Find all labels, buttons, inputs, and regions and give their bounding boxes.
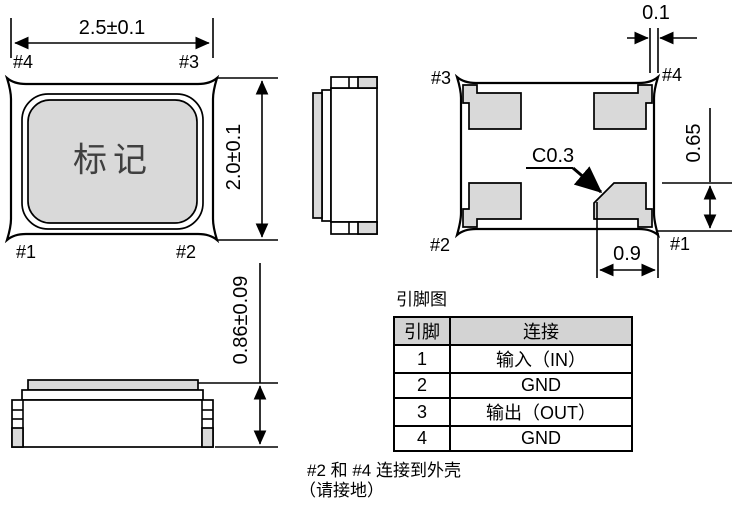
pin-connection-cell: 输出（OUT） [450,398,632,426]
pin-number-cell: 2 [394,373,450,398]
front-body [12,400,213,447]
top-view-pin2-label: #2 [176,243,196,263]
front-lid [28,380,198,390]
pin-number-cell: 4 [394,426,450,451]
chamfer-label: C0.3 [527,145,579,167]
side-body [331,88,377,222]
pin-table-header-row: 引脚 连接 [394,317,632,345]
grounding-note-line1: #2 和 #4 连接到外壳 [307,462,461,481]
pin-connection-cell: GND [450,426,632,451]
pin-table-row: 1 输入（IN） [394,345,632,373]
top-view-height-dim-label: 2.0±0.1 [223,124,245,191]
grounding-note-line2: （请接地） [299,482,384,501]
side-lid-layer [322,90,331,221]
bottom-view-pin3-label: #3 [431,69,451,89]
bottom-view-pin4-label: #4 [662,66,682,86]
bottom-view-pin2-label: #2 [430,236,450,256]
front-view-height-dim-label: 0.86±0.09 [230,276,252,365]
pin-table-row: 2 GND [394,373,632,398]
corner-offset-dim-label: 0.1 [634,2,678,24]
top-view-width-dim-label: 2.5±0.1 [52,17,172,39]
pin-number-cell: 1 [394,345,450,373]
pin-connection-cell: GND [450,373,632,398]
pin-table-row: 4 GND [394,426,632,451]
pin-connection-cell: 输入（IN） [450,345,632,373]
marking-text: 标记 [73,142,153,179]
side-view-drawing [313,77,377,234]
top-view-pin1-label: #1 [16,243,36,263]
connection-column-header: 连接 [450,317,632,345]
pin-number-cell: 3 [394,398,450,426]
pad-width-dim-label: 0.9 [603,243,651,265]
side-lid-gray-layer [313,93,322,218]
front-seal-layer [22,390,203,400]
top-view-pin3-label: #3 [179,53,199,73]
pin-table-title: 引脚图 [396,291,447,310]
crystal-package-datasheet-drawing: 2.5±0.1 #4 #3 #1 #2 标记 2.0±0.1 #3 #4 #2 … [0,0,735,515]
pin-column-header: 引脚 [394,317,450,345]
bottom-view-pin1-label: #1 [670,235,690,255]
pin-table-row: 3 输出（OUT） [394,398,632,426]
pad-height-dim-label: 0.65 [683,124,705,163]
top-view-pin4-label: #4 [13,53,33,73]
pin-table: 引脚 连接 1 输入（IN） 2 GND 3 输出（OUT） 4 GND [393,316,633,452]
